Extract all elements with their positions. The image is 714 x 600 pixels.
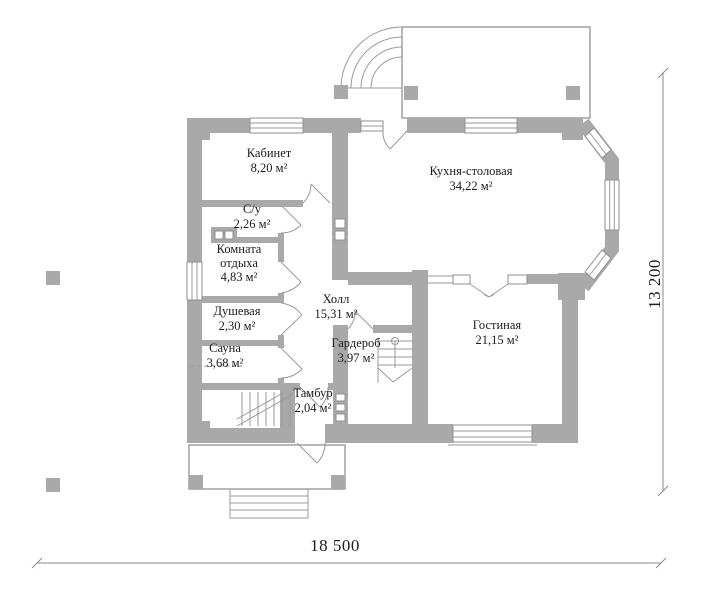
room-area: 8,20 м²	[219, 162, 319, 176]
room-label-tambur: Тамбур 2,04 м²	[263, 387, 363, 415]
floor-plan-canvas: Кабинет 8,20 м² С/у 2,26 м² Комната отды…	[0, 0, 714, 600]
room-label-holl: Холл 15,31 м²	[286, 293, 386, 321]
porch-steps	[230, 489, 308, 518]
room-label-su: С/у 2,26 м²	[204, 203, 300, 231]
room-name: Кабинет	[219, 147, 319, 161]
room-area: 34,22 м²	[406, 180, 536, 194]
room-area: 2,30 м²	[187, 320, 287, 334]
room-name: Сауна	[175, 342, 275, 356]
room-name: Душевая	[187, 305, 287, 319]
room-area: 2,04 м²	[263, 402, 363, 416]
room-name: Гардероб	[306, 337, 406, 351]
exterior-columns	[46, 271, 60, 492]
room-area: 3,68 м²	[175, 357, 275, 371]
room-label-garderob: Гардероб 3,97 м²	[306, 337, 406, 365]
room-label-komnata-otdyha: Комната отдыха 4,83 м²	[204, 243, 274, 285]
room-label-kabinet: Кабинет 8,20 м²	[219, 147, 319, 175]
dimension-height-label: 13 200	[645, 234, 661, 334]
bay-window	[583, 123, 619, 287]
room-area: 15,31 м²	[286, 308, 386, 322]
room-name: С/у	[204, 203, 300, 217]
room-name: Комната отдыха	[204, 243, 274, 270]
room-area: 3,97 м²	[306, 352, 406, 366]
room-name: Тамбур	[263, 387, 363, 401]
terrace	[334, 27, 590, 118]
room-area: 4,83 м²	[204, 271, 274, 285]
room-label-kuhnya-stolovaya: Кухня-столовая 34,22 м²	[406, 165, 536, 193]
room-label-gostinaya: Гостиная 21,15 м²	[447, 319, 547, 347]
room-area: 2,26 м²	[204, 218, 300, 232]
dimension-width-label: 18 500	[285, 536, 385, 556]
room-name: Кухня-столовая	[406, 165, 536, 179]
room-label-sauna: Сауна 3,68 м²	[175, 342, 275, 370]
room-area: 21,15 м²	[447, 334, 547, 348]
room-name: Холл	[286, 293, 386, 307]
room-label-dushevaya: Душевая 2,30 м²	[187, 305, 287, 333]
room-name: Гостиная	[447, 319, 547, 333]
